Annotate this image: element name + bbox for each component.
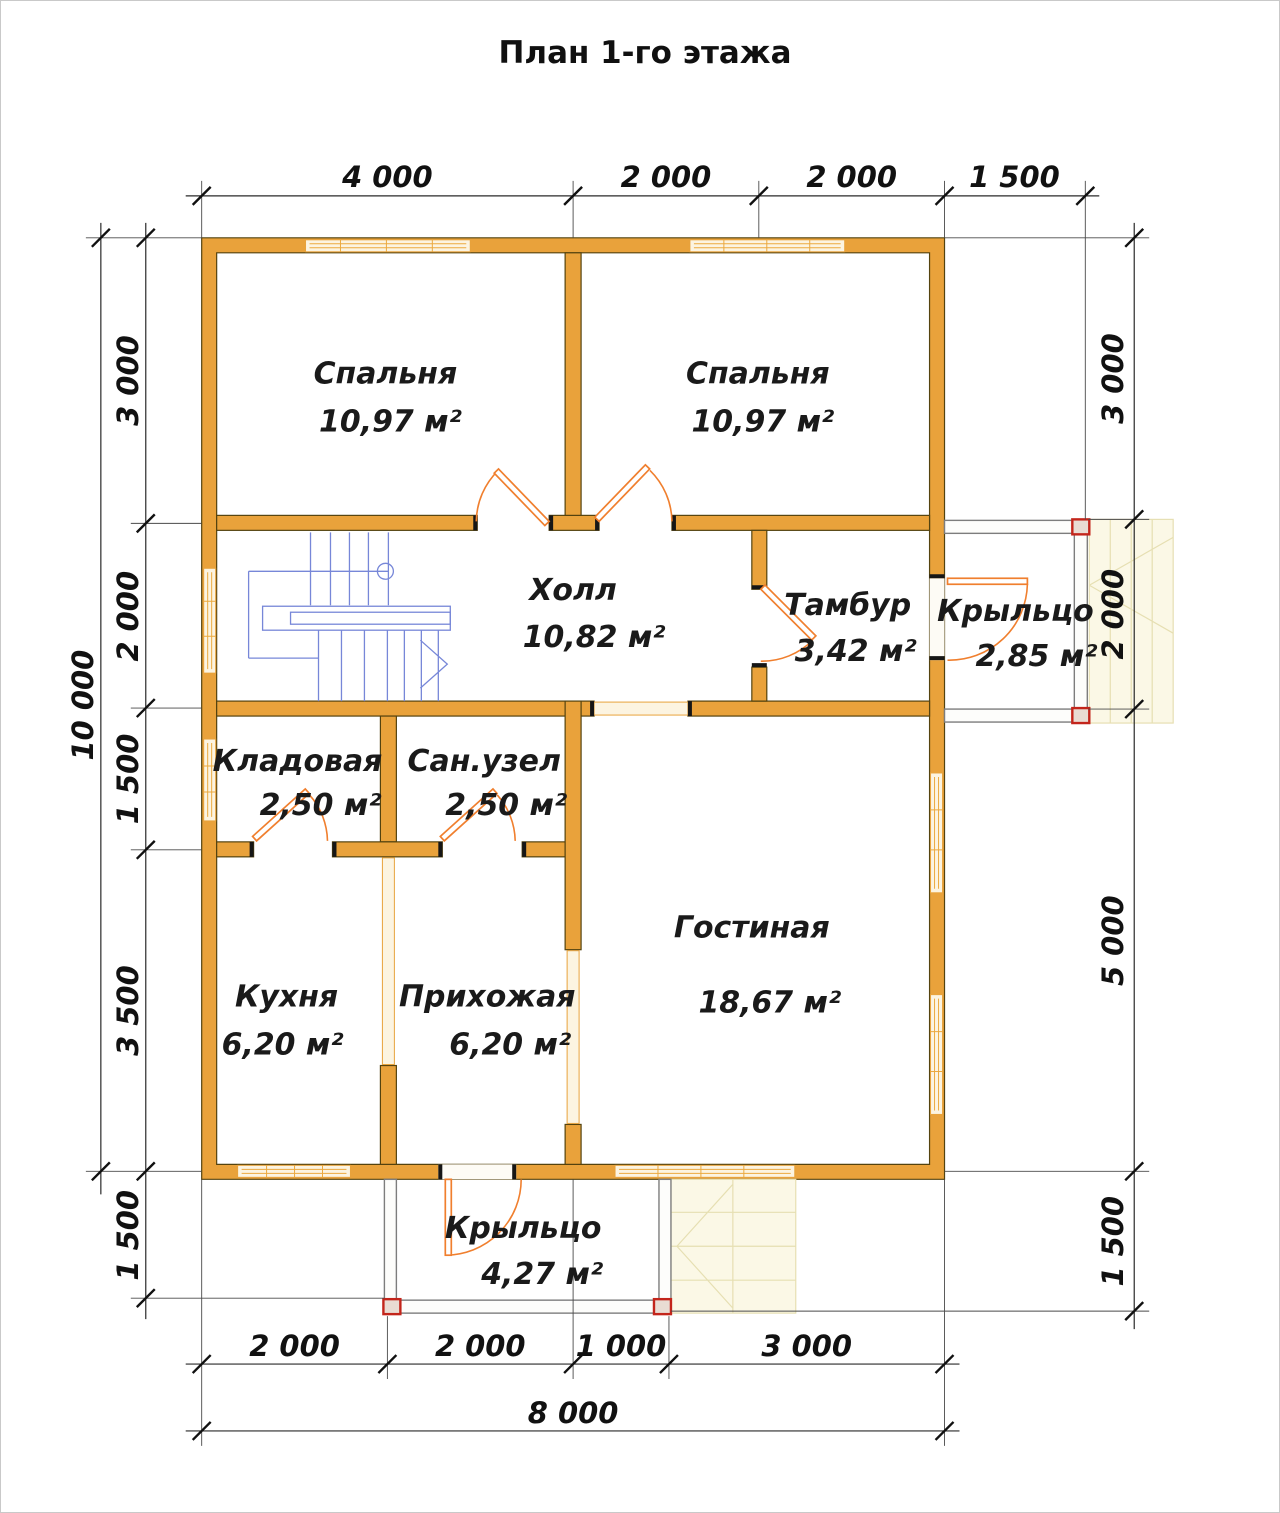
room-label-bedroom-left: Спальня: [314, 357, 458, 392]
wall-hall-top-mid: [549, 515, 599, 530]
dim-bottom-1: 2 000: [249, 1329, 340, 1363]
room-label-living: Гостиная: [674, 911, 830, 946]
window-bedroom-left: [306, 240, 471, 252]
opening-hallway-porch: [438, 1164, 516, 1179]
dim-left-2: 2 000: [111, 571, 145, 662]
dim-top-2: 2 000: [621, 160, 712, 194]
door-bedroom-right: [595, 465, 672, 522]
room-label-porch-bottom: Крыльцо: [445, 1211, 602, 1246]
porch-bottom-rail-right: [659, 1179, 671, 1301]
wall-bedroom-divider: [565, 253, 581, 516]
wall-row3-bottom-c: [522, 842, 565, 857]
dim-left-5: 1 500: [111, 1190, 145, 1281]
room-label-porch-right: Крыльцо: [937, 594, 1094, 629]
dim-left-1: 3 000: [111, 335, 145, 426]
dim-left-total: 10 000: [66, 650, 100, 761]
wall-tambour-left-lower: [752, 667, 767, 701]
wall-kitchen-hallway: [380, 1066, 396, 1165]
room-area-hallway: 6,20 м²: [449, 1028, 571, 1063]
wall-living-left-lower: [565, 1124, 581, 1164]
dim-right-4: 1 500: [1096, 1196, 1130, 1287]
porch-right-post-top: [1072, 519, 1089, 534]
room-label-bedroom-right: Спальня: [686, 357, 830, 392]
window-bedroom-right: [690, 240, 845, 252]
room-area-bathroom: 2,50 м²: [445, 788, 567, 823]
dim-right-2: 2 000: [1096, 569, 1130, 660]
room-area-porch-right: 2,85 м²: [975, 639, 1097, 674]
window-stairs-left: [204, 568, 216, 673]
window-living-right-2: [931, 995, 943, 1115]
porch-right-post-bottom: [1072, 708, 1089, 723]
room-area-storage: 2,50 м²: [260, 788, 382, 823]
porch-bottom-post-right: [654, 1299, 671, 1314]
wall-storage-bathroom: [380, 716, 396, 842]
wall-hall-top-left: [217, 515, 478, 530]
plan-title: План 1-го этажа: [499, 35, 792, 71]
room-label-hallway: Прихожая: [399, 980, 576, 1015]
porch-right-rail-top: [945, 520, 1088, 533]
dim-left-3: 1 500: [111, 734, 145, 825]
extension-lines: [86, 181, 1149, 1446]
wall-hall-bottom-right: [688, 701, 930, 716]
door-bedroom-left: [476, 469, 549, 526]
floor-plan-page: План 1-го этажа 4 000 2 000 2 000 1 500 …: [0, 0, 1280, 1513]
room-label-storage: Кладовая: [213, 744, 383, 779]
opening-kitchen-hallway: [382, 858, 394, 1065]
dim-top-1: 4 000: [341, 160, 433, 194]
staircase: [249, 532, 451, 701]
window-living-bottom: [615, 1165, 795, 1177]
room-area-kitchen: 6,20 м²: [222, 1028, 344, 1063]
room-label-bathroom: Сан.узел: [408, 744, 561, 779]
room-area-living: 18,67 м²: [698, 986, 841, 1021]
wall-living-left-upper: [565, 701, 581, 950]
opening-hall-living: [594, 702, 688, 715]
dim-ticks: [92, 187, 1143, 1440]
window-kitchen-bottom: [238, 1165, 351, 1177]
room-label-kitchen: Кухня: [235, 980, 338, 1015]
room-labels: Спальня 10,97 м² Спальня 10,97 м² Холл 1…: [213, 357, 1098, 1293]
room-area-bedroom-right: 10,97 м²: [691, 405, 834, 440]
porch-right-rail-bottom: [945, 709, 1088, 722]
window-living-right-1: [931, 773, 943, 893]
wall-tambour-left-upper: [752, 530, 767, 589]
dim-top-4: 1 500: [969, 160, 1060, 194]
dim-right-1: 3 000: [1096, 333, 1130, 424]
room-area-bedroom-left: 10,97 м²: [319, 405, 462, 440]
room-area-hall: 10,82 м²: [523, 620, 666, 655]
dim-top-3: 2 000: [806, 160, 897, 194]
dim-bottom-4: 3 000: [761, 1329, 852, 1363]
dimension-chain-lines: [101, 196, 1134, 1431]
wall-hall-top-right: [672, 515, 930, 530]
room-label-tambour: Тамбур: [784, 588, 911, 623]
dim-left-4: 3 500: [111, 965, 145, 1056]
room-area-porch-bottom: 4,27 м²: [480, 1257, 603, 1292]
dim-right-3: 5 000: [1096, 895, 1130, 986]
porch-bottom-post-left: [383, 1299, 400, 1314]
room-area-tambour: 3,42 м²: [795, 634, 917, 669]
floorplan-canvas: План 1-го этажа 4 000 2 000 2 000 1 500 …: [1, 1, 1279, 1512]
porch-bottom-rail-left: [384, 1179, 396, 1301]
room-label-hall: Холл: [527, 573, 617, 608]
wall-hall-bottom-left: [217, 701, 594, 716]
dim-bottom-3: 1 000: [576, 1329, 667, 1363]
dim-bottom-total: 8 000: [528, 1396, 619, 1430]
wall-row3-bottom-a: [217, 842, 254, 857]
wall-row3-bottom-b: [332, 842, 442, 857]
porch-bottom-rail-front: [384, 1300, 671, 1313]
stair-rail-inner: [291, 612, 451, 624]
dim-bottom-2: 2 000: [435, 1329, 526, 1363]
dimension-lines: [86, 181, 1149, 1446]
